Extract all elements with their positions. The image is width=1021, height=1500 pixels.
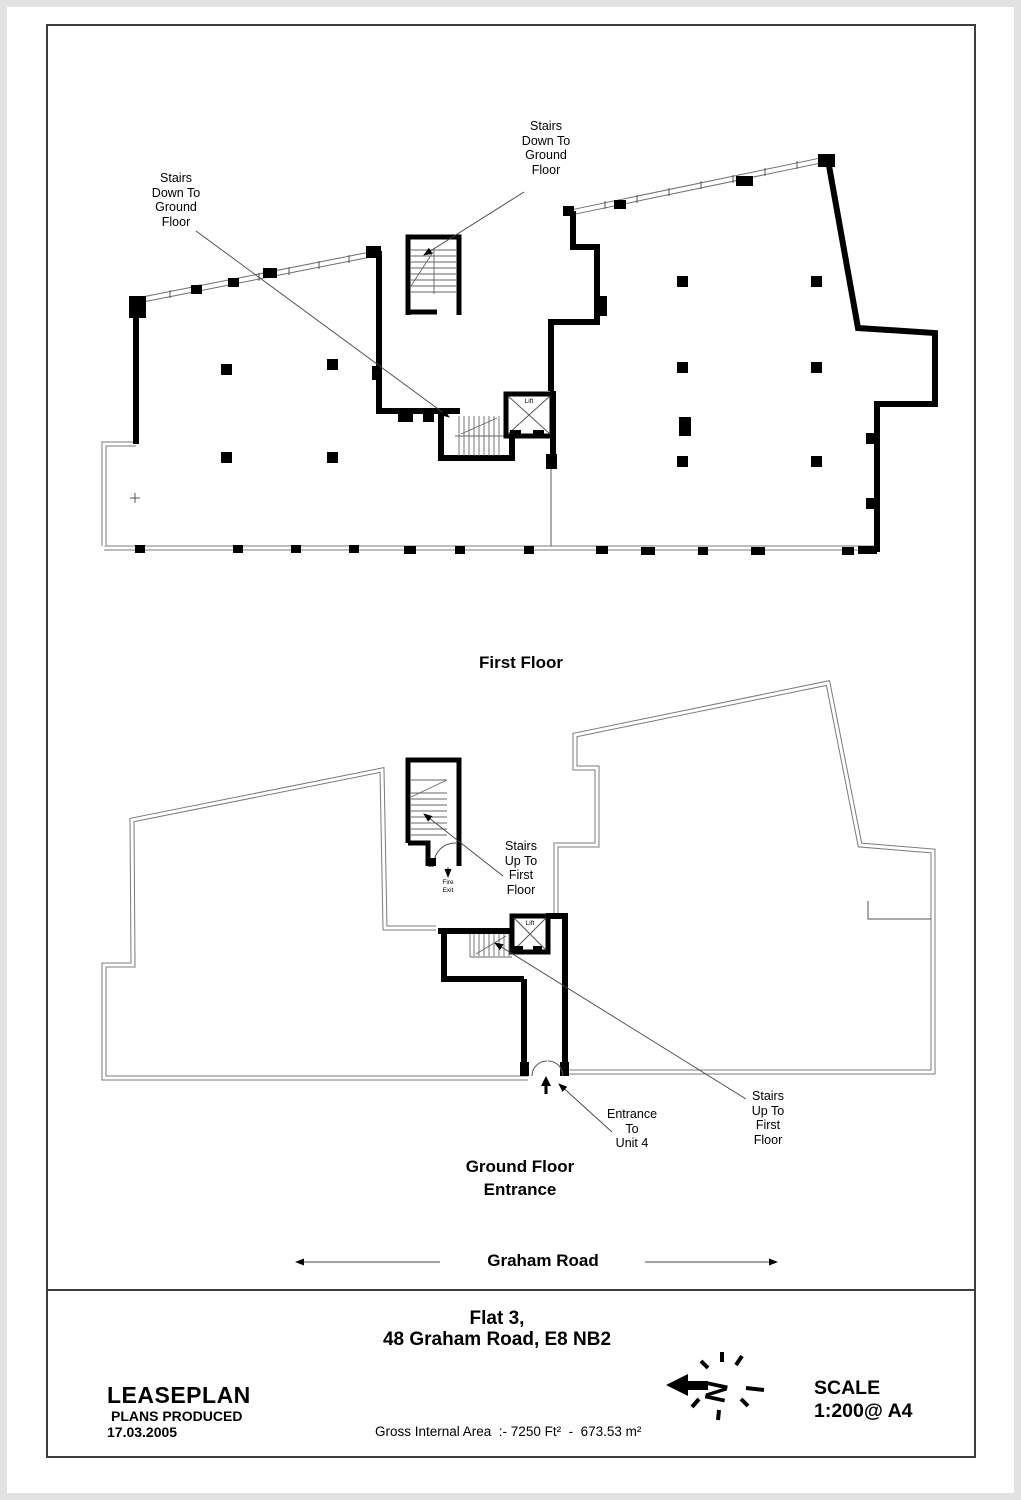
street-label: Graham Road (487, 1249, 598, 1272)
first-floor-columns (129, 154, 877, 555)
gross-internal-area: Gross Internal Area :- 7250 Ft² - 673.53… (375, 1424, 641, 1439)
sheet-title: Flat 3, 48 Graham Road, E8 NB2 (383, 1308, 611, 1350)
fire-exit-stairwell (408, 760, 459, 877)
first-floor-plan: Lift (104, 154, 935, 555)
survey-mark (130, 493, 140, 503)
first-floor-walls (136, 160, 935, 552)
leader-stairs-left (196, 231, 449, 417)
first-floor-central-stairs (455, 416, 512, 456)
title-line-1: Flat 3, (383, 1308, 611, 1329)
ground-floor-caption: Ground Floor Entrance (466, 1155, 575, 1201)
north-letter: N (699, 1379, 735, 1406)
entrance-to-unit4-label: Entrance To Unit 4 (607, 1107, 657, 1151)
scale-label: SCALE (814, 1377, 913, 1400)
leader-stairs-up-lower (495, 943, 746, 1099)
stairs-down-label-top: Stairs Down To Ground Floor (522, 119, 570, 177)
leader-stairs-top (424, 192, 524, 255)
fire-exit-door-arc (434, 843, 456, 864)
leaseplan-sheet: Lift (0, 0, 1021, 1500)
leader-entrance (559, 1084, 612, 1132)
first-floor-window-strips (140, 159, 828, 300)
plans-produced-date: 17.03.2005 (107, 1424, 251, 1440)
stairs-up-label-upper: Stairs Up To First Floor (505, 839, 537, 897)
north-arrow: N (666, 1352, 764, 1420)
ground-floor-lift: Lift (512, 916, 548, 952)
ground-floor-central-stairs (470, 934, 512, 957)
scale-block: SCALE 1:200@ A4 (814, 1377, 913, 1423)
entrance-arrow (541, 1076, 551, 1094)
stairs-down-label-left: Stairs Down To Ground Floor (152, 171, 200, 229)
lift-label-first-floor: Lift (525, 398, 534, 405)
stairs-up-label-lower: Stairs Up To First Floor (752, 1089, 784, 1147)
fire-exit-label: Fire Exit (442, 879, 453, 895)
leaseplan-brand: LEASEPLAN (107, 1383, 251, 1408)
leaseplan-block: LEASEPLAN PLANS PRODUCED 17.03.2005 (107, 1383, 251, 1440)
leader-stairs-up-upper (424, 814, 503, 876)
sheet-frame (47, 25, 975, 1457)
ground-floor-plan: Lift (104, 683, 933, 1132)
scale-value: 1:200@ A4 (814, 1400, 913, 1423)
title-line-2: 48 Graham Road, E8 NB2 (383, 1329, 611, 1350)
first-floor-lift: Lift (506, 394, 552, 436)
plans-produced-label: PLANS PRODUCED (111, 1408, 251, 1424)
first-floor-caption: First Floor (479, 651, 563, 674)
lift-label-ground-floor: Lift (526, 920, 535, 927)
